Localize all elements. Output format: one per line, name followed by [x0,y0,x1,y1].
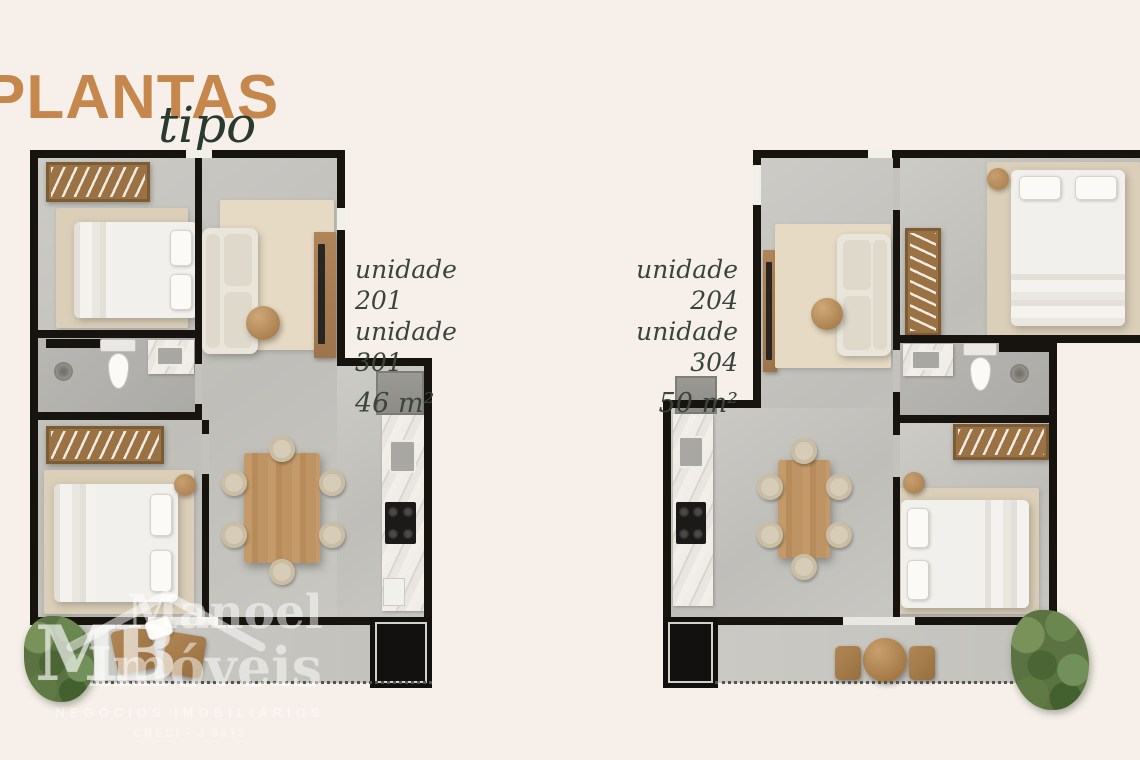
floorplan-unit-201-301 [30,150,432,695]
tv [318,244,325,344]
double-bed [54,484,178,602]
shower-head [1012,366,1027,381]
wall [893,415,1057,423]
entry-door-opening [186,150,212,158]
coffee-table [811,298,843,330]
shower-partition [999,343,1049,352]
dishwasher [383,578,405,606]
dining-chair [826,522,852,548]
bathroom-door-opening [195,364,202,404]
wardrobe [953,424,1049,460]
wardrobe [46,426,164,464]
bedside-stool [174,474,196,496]
bedroom-door-opening [893,435,900,477]
dining-chair [269,436,295,462]
tree-plant [1011,610,1089,710]
wall [893,335,1140,343]
coffee-table [246,306,280,340]
wardrobe-slats [51,167,145,197]
dining-chair [269,559,295,585]
sofa [202,228,258,354]
balcony-chair [161,631,207,679]
cooktop [385,502,416,544]
wall [753,150,1140,158]
wall [337,150,345,366]
dining-chair [221,522,247,548]
unit-area: 46 m² [355,388,497,419]
dining-chair [319,522,345,548]
balcony-table [863,638,907,682]
sofa [837,234,891,356]
dining-chair [791,554,817,580]
wardrobe [905,228,941,336]
service-shaft [370,617,432,688]
window-opening [337,208,345,230]
entry-door-opening [868,150,892,158]
bedroom-door-opening [202,434,209,474]
bedside-stool [903,472,925,494]
bathroom-door-opening [893,350,900,392]
kitchen-sink [678,436,704,468]
tv [766,262,772,360]
dining-table [244,453,320,563]
unit-area: 50 m² [588,388,738,419]
dining-chair [757,522,783,548]
window-opening [753,165,761,205]
toilet-tank [100,339,136,352]
sink-counter [148,340,194,374]
balcony-boundary-line [715,681,1049,684]
double-bed [74,222,198,318]
wall [195,158,202,338]
dining-chair [319,470,345,496]
wall [38,412,202,420]
unit-number: unidade 201 [355,254,497,316]
dining-chair [826,474,852,500]
unit-label-left: unidade 201 unidade 301 46 m² [355,254,497,419]
watermark-registration: CRECI - J 5313 [25,726,355,740]
wall [30,150,38,625]
balcony-door-opening [843,617,915,625]
dining-chair [757,474,783,500]
balcony-chair [909,646,935,680]
wardrobe [46,162,150,202]
unit-number: unidade 204 [588,254,738,316]
balcony-boundary-line [38,681,432,684]
unit-number: unidade 304 [588,316,738,378]
balcony-chair [835,646,861,680]
unit-label-right: unidade 204 unidade 304 50 m² [588,254,738,419]
watermark-tagline: NEGÓCIOS IMOBILIÁRIOS [25,705,355,720]
dining-chair [221,470,247,496]
wardrobe-slats [958,429,1044,455]
wall [1049,343,1057,625]
double-bed [901,500,1029,608]
dining-chair [791,438,817,464]
wardrobe-slats [51,431,159,459]
bedroom-door-opening [893,168,900,210]
cooktop [676,502,706,544]
wardrobe-slats [910,233,936,331]
dining-table [778,460,830,558]
service-shaft [663,617,718,688]
toilet-tank [963,343,997,356]
page-subtitle: tipo [158,96,256,154]
floorplan-unit-204-304 [663,150,1140,695]
wall [38,330,202,338]
kitchen-sink [389,440,416,473]
double-bed [1011,170,1125,326]
bedside-stool [987,168,1009,190]
sink-counter [903,344,953,376]
shower-head [56,364,71,379]
unit-number: unidade 301 [355,316,497,378]
